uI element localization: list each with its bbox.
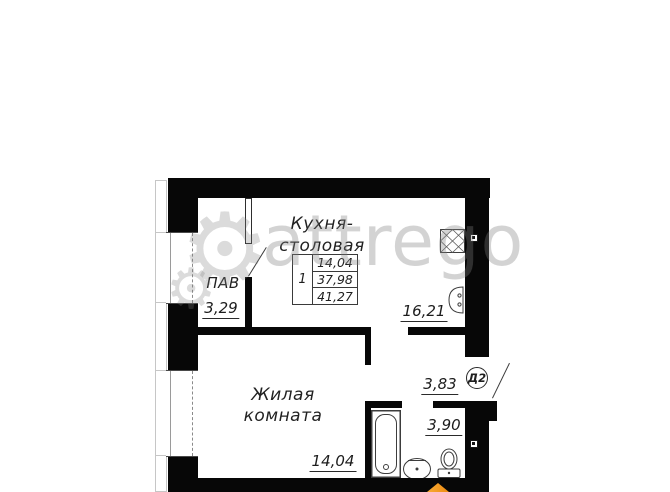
wall-bathroom-top-right [433, 401, 465, 408]
entry-door-jamb [489, 401, 497, 421]
living-area-label: 14,04 [310, 452, 357, 472]
wall-bathroom-top-left [365, 401, 402, 408]
wall-pav-vertical [245, 277, 252, 335]
kitchen-sink-icon [446, 285, 466, 315]
living-name-line2: комната [244, 406, 323, 426]
window-living [166, 370, 198, 457]
washbasin-icon [402, 456, 432, 480]
wall-mid-horizontal-left [198, 327, 371, 335]
sill-tick [156, 232, 166, 233]
window-dash-line [192, 371, 193, 456]
wall-top [168, 178, 490, 198]
wall-stub-hallway [365, 335, 371, 365]
wall-bathroom-left [365, 402, 371, 478]
stamp-living-area: 14,04 [313, 255, 357, 271]
riser-port-icon [470, 440, 478, 448]
partition-pav-kitchen [245, 198, 252, 244]
stamp-rooms-count: 1 [293, 255, 313, 304]
toilet-icon [436, 448, 462, 478]
riser-port-icon [470, 234, 478, 242]
wall-mid-horizontal-right [408, 327, 465, 335]
hallway-area-label: 3,83 [421, 375, 458, 395]
wall-left-upper [168, 198, 198, 232]
door-swing-line-entry [492, 363, 510, 399]
window-frame-line [170, 233, 171, 303]
kitchen-name-line2: столовая [279, 236, 365, 256]
entry-door-badge: Д2 [466, 367, 488, 389]
kitchen-area-label: 16,21 [401, 302, 448, 322]
window-frame-line [170, 371, 171, 456]
window-pav [166, 232, 198, 304]
pav-area-label: 3,29 [202, 299, 239, 319]
bathroom-area-label: 3,90 [425, 416, 462, 436]
stamp-total-area: 41,27 [313, 287, 357, 304]
wall-right-upper [465, 198, 489, 357]
window-dash-line [192, 233, 193, 303]
stamp-apartment-area: 37,98 [313, 271, 357, 288]
living-name-line1: Жилая [251, 385, 314, 405]
riser-port-dot [472, 236, 475, 239]
kitchen-name-line1: Кухня- [291, 214, 354, 234]
bathtub-icon [371, 410, 401, 478]
riser-port-dot [472, 442, 475, 445]
floor-plan: Кухня- столовая 16,21 ПАВ 3,29 Жилая ком… [0, 0, 670, 492]
sill-tick [156, 370, 166, 371]
wall-left-middle [168, 302, 198, 370]
vent-shaft-icon [440, 229, 465, 253]
apartment-stamp-table: 1 14,04 37,98 41,27 [292, 254, 358, 305]
sill-tick [156, 302, 166, 303]
sill-tick [156, 455, 166, 456]
door-swing-line-pav [248, 247, 267, 276]
pav-name: ПАВ [206, 274, 239, 292]
